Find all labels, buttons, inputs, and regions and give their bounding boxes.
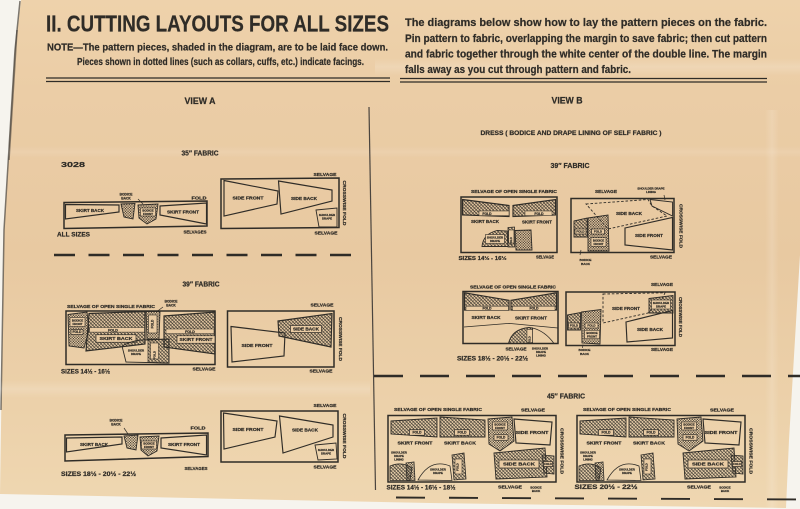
svg-text:SELVAGE: SELVAGE <box>710 408 735 414</box>
svg-text:FOLD: FOLD <box>528 336 532 343</box>
svg-text:CROSSWISE FOLD: CROSSWISE FOLD <box>342 414 347 459</box>
svg-text:SIDE BACK: SIDE BACK <box>293 327 320 332</box>
svg-text:FOLD: FOLD <box>647 431 657 435</box>
svg-text:SIZES 14½ - 16½: SIZES 14½ - 16½ <box>459 255 507 262</box>
svg-text:FRONT: FRONT <box>594 242 604 246</box>
svg-text:FOLD: FOLD <box>602 431 612 435</box>
svg-text:SIDE FRONT: SIDE FRONT <box>242 343 273 348</box>
svg-text:Pieces shown in dotted lines (: Pieces shown in dotted lines (such as co… <box>77 57 364 68</box>
svg-text:SKIRT BACK: SKIRT BACK <box>76 208 105 213</box>
svg-text:II. CUTTING LAYOUTS FOR AL: II. CUTTING LAYOUTS FOR ALL SIZES <box>46 11 389 37</box>
svg-text:SKIRT FRONT: SKIRT FRONT <box>168 442 200 447</box>
svg-text:FOLD: FOLD <box>587 324 596 328</box>
svg-text:FOLD: FOLD <box>73 330 83 334</box>
svg-text:CROSSWISE FOLD: CROSSWISE FOLD <box>560 428 565 474</box>
svg-text:FOLD: FOLD <box>733 462 741 466</box>
svg-text:SIDE BACK: SIDE BACK <box>503 462 536 467</box>
svg-text:CROSSWISE FOLD: CROSSWISE FOLD <box>679 204 684 248</box>
svg-text:SELVAGE: SELVAGE <box>498 485 523 491</box>
svg-text:and fabric together through th: and fabric together through the white ce… <box>405 49 767 61</box>
svg-text:DRAPE: DRAPE <box>656 305 666 309</box>
svg-text:SIZES 14½ - 16½: SIZES 14½ - 16½ <box>61 369 110 376</box>
svg-text:Pin pattern to fabric, overlap: Pin pattern to fabric, overlapping the m… <box>405 33 767 45</box>
svg-text:SIZES 18½ - 20½ - 22½: SIZES 18½ - 20½ - 22½ <box>61 470 136 478</box>
svg-text:SELVAGE: SELVAGE <box>521 408 546 414</box>
svg-text:SELVAGE: SELVAGE <box>595 189 617 194</box>
svg-text:SIZES 18½ - 20½ - 22½: SIZES 18½ - 20½ - 22½ <box>457 356 528 363</box>
svg-text:SIZES 14½ - 16½ - 18½: SIZES 14½ - 16½ - 18½ <box>387 484 456 492</box>
svg-text:SKIRT FRONT: SKIRT FRONT <box>522 220 552 225</box>
svg-text:SELVAGE: SELVAGE <box>651 347 673 352</box>
svg-text:FRONT: FRONT <box>73 322 83 326</box>
svg-text:DRAPE: DRAPE <box>490 239 500 243</box>
svg-text:SIDE FRONT: SIDE FRONT <box>233 196 264 201</box>
svg-text:BACK: BACK <box>121 197 131 201</box>
svg-text:SKIRT BACK: SKIRT BACK <box>471 219 500 224</box>
svg-text:FOLD: FOLD <box>483 307 493 311</box>
svg-text:BACK: BACK <box>166 304 176 308</box>
svg-text:FOLD: FOLD <box>544 462 552 466</box>
svg-text:SKIRT BACK: SKIRT BACK <box>633 441 666 446</box>
svg-text:SIZES 20½ - 22½: SIZES 20½ - 22½ <box>575 483 638 491</box>
svg-text:FOLD: FOLD <box>570 324 579 328</box>
svg-text:SELVAGE OF OPEN SINGLE FABRIC: SELVAGE OF OPEN SINGLE FABRIC <box>470 285 557 290</box>
svg-text:LINING: LINING <box>646 190 657 194</box>
svg-text:DRAPE: DRAPE <box>322 217 332 221</box>
svg-text:SELVAGES: SELVAGES <box>184 230 207 235</box>
svg-text:BACK: BACK <box>532 489 541 493</box>
svg-text:FOLD: FOLD <box>686 436 695 440</box>
svg-text:DRAPE: DRAPE <box>622 471 632 475</box>
svg-text:FOLD: FOLD <box>413 431 423 435</box>
svg-text:SELVAGE: SELVAGE <box>315 231 338 236</box>
svg-text:FOLD: FOLD <box>576 230 585 234</box>
svg-text:FRONT: FRONT <box>144 445 154 449</box>
svg-text:DRAPE: DRAPE <box>131 352 141 356</box>
svg-text:FOLD: FOLD <box>185 330 195 334</box>
svg-text:3028: 3028 <box>61 160 85 169</box>
svg-text:The diagrams below show how to: The diagrams below show how to lay the p… <box>405 17 767 29</box>
svg-text:SKIRT BACK: SKIRT BACK <box>100 336 134 341</box>
svg-text:LINING: LINING <box>536 354 547 358</box>
svg-text:SKIRT BACK: SKIRT BACK <box>444 441 477 446</box>
svg-text:SIDE BACK: SIDE BACK <box>637 327 664 332</box>
svg-text:NOTE—The pattern pieces, shade: NOTE—The pattern pieces, shaded in the d… <box>47 43 388 54</box>
svg-text:FOLD: FOLD <box>458 431 468 435</box>
svg-text:SELVAGES: SELVAGES <box>185 466 208 471</box>
svg-text:39″ FABRIC: 39″ FABRIC <box>551 163 590 170</box>
svg-text:ALL SIZES: ALL SIZES <box>57 232 91 239</box>
svg-text:SKIRT BACK: SKIRT BACK <box>472 315 502 320</box>
svg-text:FRONT: FRONT <box>143 212 153 216</box>
svg-text:SIDE FRONT: SIDE FRONT <box>705 430 738 435</box>
svg-text:SELVAGE: SELVAGE <box>311 303 334 308</box>
svg-text:SIDE FRONT: SIDE FRONT <box>516 430 549 435</box>
svg-text:CROSSWISE FOLD: CROSSWISE FOLD <box>342 181 347 226</box>
svg-text:SELVAGE OF OPEN SINGLE FABRIC: SELVAGE OF OPEN SINGLE FABRIC <box>583 407 671 412</box>
svg-text:FOLD: FOLD <box>497 436 506 440</box>
svg-text:BACK: BACK <box>721 489 730 493</box>
svg-text:SIDE BACK: SIDE BACK <box>692 462 725 467</box>
svg-text:SKIRT FRONT: SKIRT FRONT <box>167 210 199 215</box>
svg-text:BACK: BACK <box>580 352 590 356</box>
svg-text:SELVAGE OF OPEN SINGLE FABRIC: SELVAGE OF OPEN SINGLE FABRIC <box>471 189 558 194</box>
svg-text:SKIRT FRONT: SKIRT FRONT <box>180 337 213 342</box>
svg-text:45″ FABRIC: 45″ FABRIC <box>547 394 585 401</box>
svg-text:CROSSWISE FOLD: CROSSWISE FOLD <box>338 317 343 361</box>
svg-text:SKIRT FRONT: SKIRT FRONT <box>398 441 433 446</box>
svg-text:LINING: LINING <box>394 458 403 462</box>
svg-text:SELVAGE: SELVAGE <box>314 172 337 177</box>
svg-text:SELVAGE: SELVAGE <box>193 367 216 372</box>
svg-text:SELVAGE OF OPEN SINGLE FABRIC: SELVAGE OF OPEN SINGLE FABRIC <box>394 407 482 412</box>
svg-text:SKIRT BACK: SKIRT BACK <box>80 442 109 447</box>
svg-text:SELVAGE: SELVAGE <box>506 347 527 352</box>
svg-text:VIEW B: VIEW B <box>552 96 583 107</box>
svg-text:FOLD: FOLD <box>509 237 513 244</box>
svg-text:CROSSWISE FOLD: CROSSWISE FOLD <box>749 428 754 474</box>
svg-text:FRONT: FRONT <box>587 335 597 339</box>
svg-text:SKIRT FRONT: SKIRT FRONT <box>587 441 622 446</box>
svg-text:39″ FABRIC: 39″ FABRIC <box>183 282 220 289</box>
svg-text:FOLD: FOLD <box>151 319 155 328</box>
svg-text:SELVAGE: SELVAGE <box>687 485 712 491</box>
svg-text:FOLD: FOLD <box>645 463 649 471</box>
svg-text:SELVAGE: SELVAGE <box>314 465 337 470</box>
svg-text:VIEW A: VIEW A <box>185 96 216 107</box>
svg-text:CROSSWISE FOLD: CROSSWISE FOLD <box>678 297 683 337</box>
svg-text:FOLD: FOLD <box>153 350 157 359</box>
svg-text:FRONT: FRONT <box>684 426 694 430</box>
svg-text:SELVAGE OF OPEN SINGLE FABRIC: SELVAGE OF OPEN SINGLE FABRIC <box>67 304 156 309</box>
svg-text:FOLD: FOLD <box>482 212 492 216</box>
svg-text:FOLD: FOLD <box>192 196 208 202</box>
svg-text:DRAPE: DRAPE <box>321 452 331 456</box>
svg-text:FOLD: FOLD <box>456 463 460 471</box>
svg-text:FOLD: FOLD <box>534 212 544 216</box>
svg-text:SIDE FRONT: SIDE FRONT <box>233 427 264 432</box>
svg-text:FOLD: FOLD <box>530 307 540 311</box>
svg-text:SELVAGE: SELVAGE <box>536 255 554 260</box>
svg-text:SIDE FRONT: SIDE FRONT <box>612 306 640 311</box>
svg-text:falls away as you cut through: falls away as you cut through pattern an… <box>405 64 631 76</box>
svg-text:DRAPE: DRAPE <box>433 471 443 475</box>
svg-text:DRESS ( BODICE AND DRAPE LIN: DRESS ( BODICE AND DRAPE LINING OF SELF … <box>481 130 662 137</box>
svg-text:BACK: BACK <box>581 262 591 266</box>
svg-text:35″ FABRIC: 35″ FABRIC <box>182 151 219 158</box>
svg-text:FOLD: FOLD <box>108 328 118 332</box>
svg-text:FOLD: FOLD <box>594 230 603 234</box>
svg-text:SIDE BACK: SIDE BACK <box>291 196 318 201</box>
svg-text:SELVAGE: SELVAGE <box>314 403 337 408</box>
svg-text:SKIRT FRONT: SKIRT FRONT <box>515 316 547 321</box>
svg-text:FOLD: FOLD <box>191 426 207 432</box>
svg-text:FRONT: FRONT <box>495 426 505 430</box>
svg-text:SIDE BACK: SIDE BACK <box>616 211 643 216</box>
svg-text:BACK: BACK <box>111 423 121 427</box>
svg-text:SELVAGE: SELVAGE <box>651 282 673 287</box>
svg-text:SIDE BACK: SIDE BACK <box>292 428 319 433</box>
svg-text:SELVAGE: SELVAGE <box>650 255 672 260</box>
svg-text:SELVAGE: SELVAGE <box>310 369 333 374</box>
svg-text:LINING: LINING <box>583 458 592 462</box>
svg-text:SIDE FRONT: SIDE FRONT <box>635 233 663 238</box>
